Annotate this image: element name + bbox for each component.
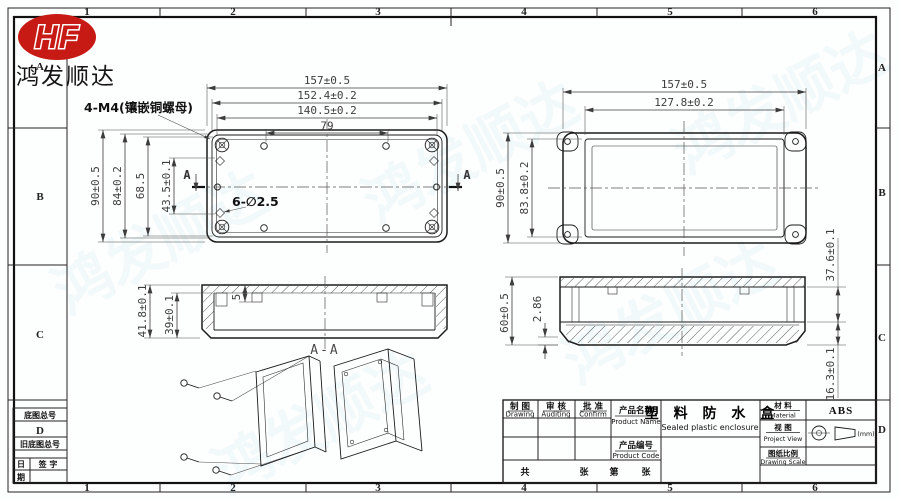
- sheet-no-label: 第: [609, 466, 618, 478]
- scale-label-en: Drawing Scale: [760, 459, 805, 466]
- drawing-canvas: 鸿发顺达 鸿发顺达 鸿发顺达 鸿发顺达 鸿发顺达: [0, 0, 900, 500]
- sheet-unit-1: 张: [579, 466, 589, 478]
- zone-right-C: C: [878, 332, 886, 344]
- zone-bottom-3: 3: [375, 482, 381, 494]
- dim-83: 83.8±0.2: [518, 162, 531, 215]
- svg-text:鸿发顺达: 鸿发顺达: [202, 338, 439, 500]
- signature-label: 签 字: [38, 459, 58, 469]
- zone-left-D: D: [36, 425, 44, 437]
- dim-157-front: 157±0.5: [661, 78, 707, 91]
- svg-text:鸿发顺达: 鸿发顺达: [352, 68, 589, 237]
- scale-label-cn: 图纸比例: [768, 448, 798, 458]
- zone-top-4: 4: [521, 6, 527, 18]
- note-brass-inserts: 4-M4(镶嵌铜螺母): [84, 100, 193, 115]
- product-code-label-cn: 产品编号: [619, 440, 654, 451]
- view-label-cn: 视 图: [774, 422, 792, 432]
- dim-84: 84±0.2: [111, 166, 124, 206]
- unit-label: (mm): [857, 431, 874, 438]
- dim-127: 127.8±0.2: [654, 96, 714, 109]
- drawing-label-en: Drawing: [505, 411, 534, 419]
- product-code-label-en: Product Code: [613, 452, 660, 460]
- zone-top-3: 3: [375, 6, 381, 18]
- logo-text: HF: [35, 19, 80, 55]
- sheet-unit-2: 张: [641, 466, 651, 478]
- zone-top-2: 2: [230, 6, 236, 18]
- zone-bottom-1: 1: [84, 482, 90, 494]
- dim-79: 79: [320, 120, 333, 133]
- old-base-drawing-no-label: 旧底图总号: [20, 439, 60, 449]
- dim-68: 68.5: [134, 173, 147, 200]
- view-label-en: Project View: [764, 436, 803, 443]
- company-logo-block: HF 鸿发顺达: [16, 14, 116, 90]
- zone-bottom-5: 5: [667, 482, 673, 494]
- zone-left-B: B: [36, 191, 44, 203]
- dim-163: 16.3±0.1: [824, 348, 837, 401]
- note-6-holes: 6-∅2.5: [232, 194, 279, 209]
- date-label-bottom: 期: [17, 472, 25, 482]
- corner-table: 底图总号 旧底图总号 日 期 签 字: [13, 408, 67, 483]
- dim-286: 2.86: [531, 296, 544, 323]
- dim-5: 5: [230, 294, 243, 301]
- zone-top-6: 6: [812, 6, 818, 18]
- zone-bottom-4: 4: [521, 482, 527, 494]
- dim-152: 152.4±0.2: [297, 89, 357, 102]
- dim-39: 39±0.1: [163, 295, 176, 335]
- zone-right-D: D: [878, 424, 886, 436]
- material-label-cn: 材 料: [774, 400, 792, 410]
- dim-90-top: 90±0.5: [89, 166, 102, 206]
- first-angle-projection-icon: [808, 426, 855, 440]
- dim-376: 37.6±0.1: [824, 229, 837, 282]
- dim-140: 140.5±0.2: [297, 104, 357, 117]
- zone-left-C: C: [36, 329, 44, 341]
- section-title: A-A: [310, 343, 339, 358]
- zone-bottom-2: 2: [230, 482, 236, 494]
- title-block: 制 图 Drawing 审 核 Auditing 批 准 Confirm 产品名…: [503, 400, 876, 483]
- section-arrow-label-right: A: [463, 168, 471, 182]
- dim-157-top: 157±0.5: [304, 74, 350, 87]
- dim-43: 43.5±0.1: [160, 160, 173, 213]
- section-arrow-label-left: A: [183, 168, 191, 182]
- material-label-en: Material: [770, 413, 796, 420]
- dim-41: 41.8±0.1: [136, 285, 149, 338]
- dim-90-front: 90±0.5: [494, 168, 507, 208]
- material-value: ABS: [829, 405, 853, 417]
- zone-top-5: 5: [667, 6, 673, 18]
- zone-bottom-6: 6: [812, 482, 818, 494]
- engineering-drawing-sheet: 鸿发顺达 鸿发顺达 鸿发顺达 鸿发顺达 鸿发顺达: [0, 0, 900, 500]
- company-name: 鸿发顺达: [16, 64, 116, 90]
- dim-60: 60±0.5: [498, 293, 511, 333]
- zone-right-B: B: [878, 187, 886, 199]
- watermark: 鸿发顺达 鸿发顺达 鸿发顺达 鸿发顺达 鸿发顺达: [42, 18, 899, 500]
- confirm-label-en: Confirm: [579, 411, 607, 419]
- zone-right-A: A: [878, 62, 886, 74]
- zone-top-1: 1: [84, 6, 90, 18]
- sheet-total-label: 共: [520, 466, 529, 478]
- auditing-label-en: Auditing: [541, 411, 570, 419]
- date-label-top: 日: [17, 460, 25, 469]
- product-name-value-cn: 塑 料 防 水 盒: [645, 405, 780, 422]
- product-name-value-en: Sealed plastic enclosure: [661, 423, 758, 432]
- svg-text:鸿发顺达: 鸿发顺达: [552, 228, 789, 397]
- base-drawing-no-label: 底图总号: [23, 410, 56, 420]
